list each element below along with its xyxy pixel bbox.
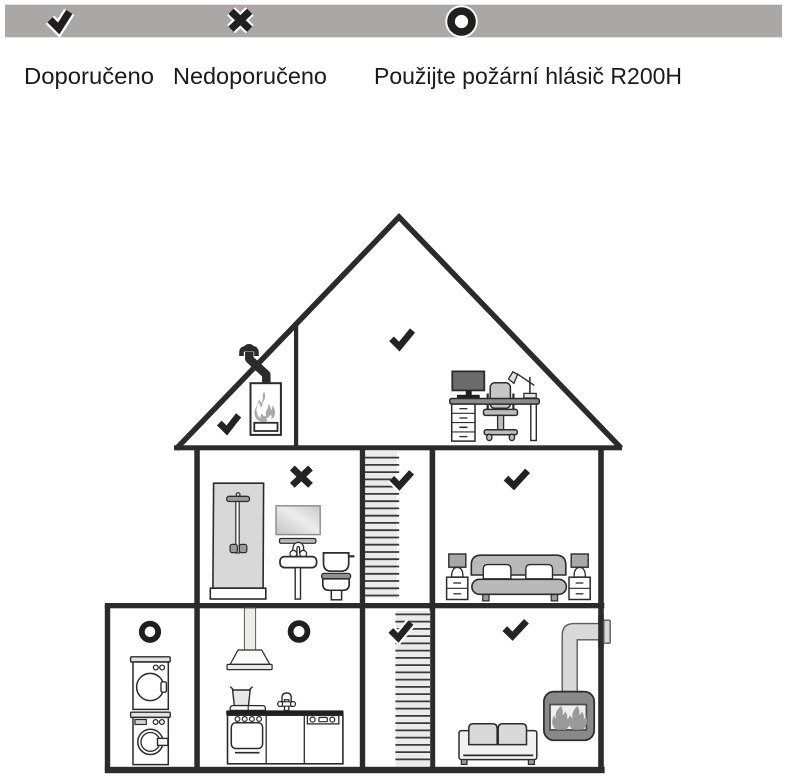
svg-text:Doporučeno: Doporučeno xyxy=(24,63,154,89)
svg-text:Použijte požární hlásič R200H: Použijte požární hlásič R200H xyxy=(374,63,682,89)
svg-text:Nedoporučeno: Nedoporučeno xyxy=(173,63,327,89)
